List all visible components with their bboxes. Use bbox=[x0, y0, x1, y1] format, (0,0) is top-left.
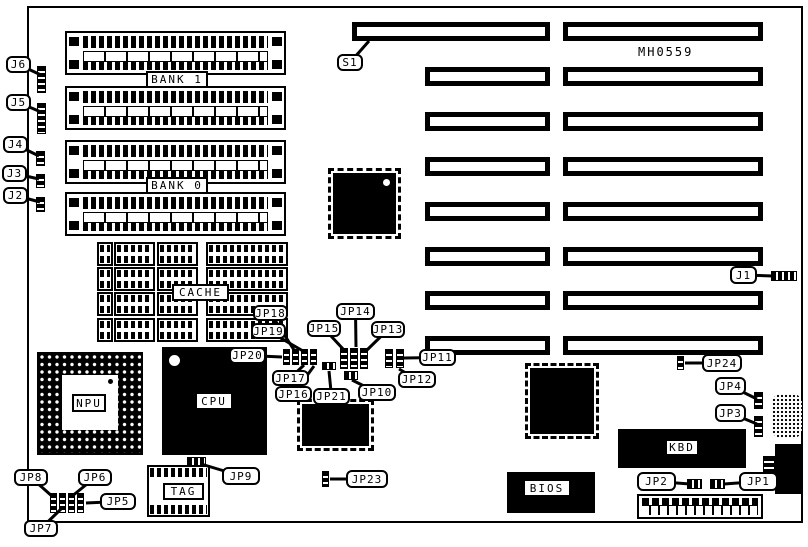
callout-jp11: JP11 bbox=[419, 349, 456, 366]
callout-jp9: JP9 bbox=[222, 467, 260, 485]
callout-jp8: JP8 bbox=[14, 469, 48, 486]
callout-jp13: JP13 bbox=[371, 321, 405, 338]
callout-jp17: JP17 bbox=[272, 370, 309, 386]
callout-jp12: JP12 bbox=[398, 371, 436, 388]
callout-s1: S1 bbox=[337, 54, 363, 71]
callout-jp15: JP15 bbox=[307, 320, 341, 337]
motherboard-diagram: MH0559 BANK 1BANK 0CACHETAGNPUCPUKBDBIOS… bbox=[0, 0, 808, 547]
callout-jp20: JP20 bbox=[229, 347, 266, 364]
callout-j2: J2 bbox=[3, 187, 28, 204]
callout-jp19: JP19 bbox=[251, 323, 286, 339]
callout-j1: J1 bbox=[730, 266, 757, 284]
callout-jp7: JP7 bbox=[24, 520, 58, 537]
callout-jp5: JP5 bbox=[100, 493, 136, 510]
callout-jp18: JP18 bbox=[253, 305, 288, 321]
callout-j5: J5 bbox=[6, 94, 31, 111]
callout-jp21: JP21 bbox=[313, 388, 350, 405]
callout-jp14: JP14 bbox=[336, 303, 375, 320]
callout-jp23: JP23 bbox=[346, 470, 388, 488]
callout-jp24: JP24 bbox=[702, 354, 742, 372]
callout-jp16: JP16 bbox=[275, 386, 312, 402]
callout-jp4: JP4 bbox=[715, 377, 746, 395]
callout-jp3: JP3 bbox=[715, 404, 746, 422]
callout-jp6: JP6 bbox=[78, 469, 112, 486]
callout-j3: J3 bbox=[2, 165, 27, 182]
callout-jp10: JP10 bbox=[358, 384, 396, 401]
callout-j6: J6 bbox=[6, 56, 31, 73]
callout-j4: J4 bbox=[3, 136, 28, 153]
callout-jp2: JP2 bbox=[637, 472, 676, 491]
callout-jp1: JP1 bbox=[739, 472, 778, 491]
callout-leader-lines bbox=[0, 0, 808, 547]
